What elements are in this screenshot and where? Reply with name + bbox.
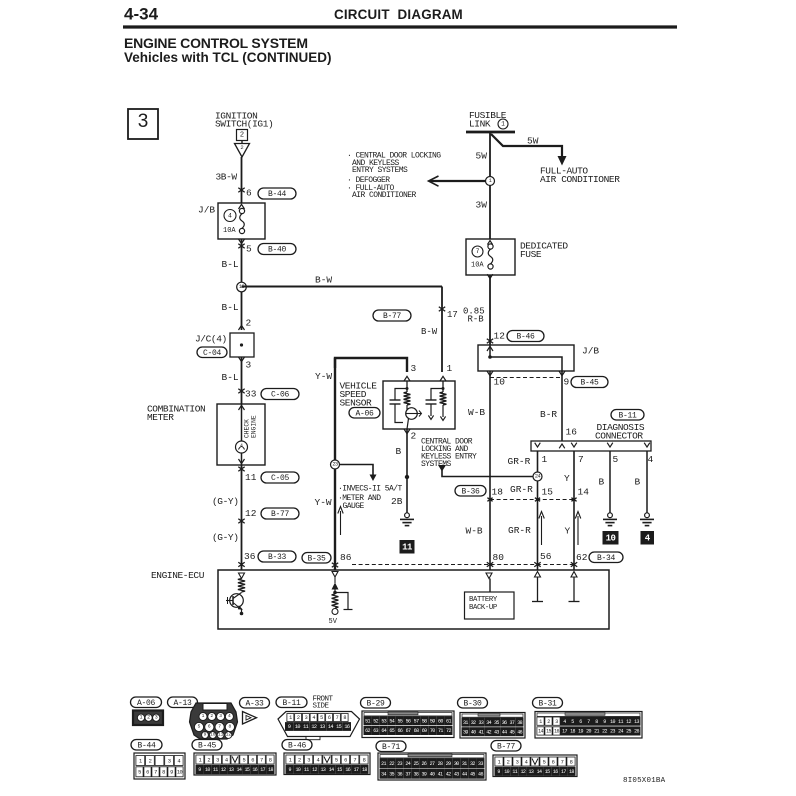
svg-text:5: 5	[246, 243, 252, 254]
svg-text:2: 2	[149, 758, 152, 764]
svg-text:68: 68	[414, 728, 419, 734]
svg-text:71: 71	[438, 728, 443, 734]
svg-text:·INVECS-II 5A/T: ·INVECS-II 5A/T	[338, 485, 403, 494]
svg-text:8: 8	[162, 770, 165, 776]
svg-text:24: 24	[535, 474, 541, 480]
svg-text:25: 25	[626, 729, 631, 735]
svg-text:B-77: B-77	[383, 312, 402, 321]
svg-text:6: 6	[344, 757, 347, 763]
svg-text:4: 4	[240, 443, 243, 449]
svg-text:LINK: LINK	[469, 118, 491, 129]
svg-text:45: 45	[470, 771, 475, 777]
svg-text:31: 31	[463, 720, 468, 726]
svg-text:5: 5	[242, 757, 245, 763]
svg-text:B-45: B-45	[580, 379, 599, 388]
svg-text:5W: 5W	[527, 135, 539, 146]
svg-text:2: 2	[298, 757, 301, 763]
svg-text:55: 55	[398, 718, 403, 724]
svg-text:12: 12	[494, 330, 506, 341]
svg-text:B: B	[396, 446, 402, 457]
svg-text:B-45: B-45	[198, 741, 217, 750]
svg-text:2: 2	[147, 715, 150, 721]
svg-text:3: 3	[216, 757, 219, 763]
svg-text:16: 16	[566, 426, 578, 437]
svg-text:23: 23	[397, 761, 402, 767]
svg-text:35: 35	[494, 720, 499, 726]
svg-text:1: 1	[542, 454, 548, 465]
svg-text:ENTRY SYSTEMS: ENTRY SYSTEMS	[352, 166, 408, 175]
svg-text:15: 15	[337, 767, 342, 773]
svg-text:80: 80	[493, 552, 505, 563]
svg-text:B-36: B-36	[461, 487, 480, 496]
svg-text:B-11: B-11	[282, 699, 301, 708]
svg-text:36: 36	[397, 771, 402, 777]
svg-text:16: 16	[345, 767, 350, 773]
svg-text:42: 42	[446, 771, 451, 777]
svg-text:2: 2	[207, 757, 210, 763]
svg-text:37: 37	[405, 771, 410, 777]
svg-text:12: 12	[226, 731, 232, 737]
svg-text:12: 12	[520, 769, 525, 775]
svg-text:R-B: R-B	[468, 315, 485, 325]
svg-text:11: 11	[218, 731, 224, 737]
svg-text:C-06: C-06	[271, 391, 290, 400]
svg-text:1: 1	[139, 715, 142, 721]
svg-text:3W: 3W	[476, 199, 488, 210]
svg-text:Vehicles with TCL (CONTINUED): Vehicles with TCL (CONTINUED)	[124, 50, 332, 65]
svg-text:CIRCUIT DIAGRAM: CIRCUIT DIAGRAM	[334, 7, 463, 22]
svg-text:30: 30	[454, 761, 459, 767]
svg-text:CHECK: CHECK	[244, 419, 251, 438]
svg-text:61: 61	[446, 718, 451, 724]
svg-text:23: 23	[332, 462, 338, 468]
svg-text:15: 15	[545, 769, 550, 775]
svg-text:33: 33	[478, 761, 483, 767]
svg-text:36: 36	[244, 551, 256, 562]
svg-text:14: 14	[237, 767, 242, 773]
svg-text:42: 42	[486, 729, 491, 735]
svg-text:SYSTEMS: SYSTEMS	[421, 460, 452, 469]
svg-text:B-34: B-34	[597, 554, 616, 563]
svg-text:34: 34	[486, 720, 491, 726]
svg-text:B: B	[599, 476, 605, 487]
svg-text:A-33: A-33	[245, 699, 264, 708]
svg-text:C-04: C-04	[203, 349, 222, 358]
svg-text:17: 17	[354, 767, 359, 773]
svg-text:Y: Y	[564, 473, 570, 484]
svg-text:67: 67	[406, 728, 411, 734]
svg-text:22: 22	[602, 729, 607, 735]
svg-text:13: 13	[634, 719, 639, 725]
svg-text:1: 1	[289, 757, 292, 763]
svg-text:GR-R: GR-R	[510, 484, 533, 495]
svg-text:35: 35	[389, 771, 394, 777]
svg-text:9: 9	[564, 376, 570, 387]
svg-text:A-13: A-13	[173, 699, 192, 708]
svg-text:B-L: B-L	[222, 302, 239, 313]
svg-text:40: 40	[471, 729, 476, 735]
svg-text:3: 3	[155, 715, 158, 721]
svg-text:8: 8	[363, 757, 366, 763]
svg-text:62: 62	[576, 552, 588, 563]
svg-text:B-L: B-L	[222, 372, 239, 383]
svg-text:SWITCH(IG1): SWITCH(IG1)	[215, 118, 273, 129]
svg-text:5: 5	[198, 723, 201, 729]
svg-text:12: 12	[626, 719, 631, 725]
svg-text:15: 15	[336, 724, 342, 730]
svg-text:13: 13	[529, 769, 534, 775]
svg-text:53: 53	[381, 718, 386, 724]
svg-text:10: 10	[494, 376, 506, 387]
svg-text:GR-R: GR-R	[508, 525, 531, 536]
svg-text:CONNECTOR: CONNECTOR	[595, 430, 643, 441]
svg-text:17: 17	[561, 769, 566, 775]
svg-text:3: 3	[516, 759, 519, 765]
svg-text:2: 2	[240, 132, 244, 140]
svg-text:METER: METER	[147, 412, 174, 423]
svg-text:11: 11	[303, 724, 309, 730]
svg-text:18: 18	[362, 767, 367, 773]
svg-text:24: 24	[618, 729, 623, 735]
svg-text:10A: 10A	[223, 227, 236, 235]
svg-text:10: 10	[295, 724, 301, 730]
svg-text:36: 36	[502, 720, 507, 726]
svg-text:3: 3	[411, 363, 417, 374]
svg-text:46: 46	[517, 729, 522, 735]
svg-text:43: 43	[454, 771, 459, 777]
svg-text:44: 44	[502, 729, 507, 735]
svg-text:56: 56	[406, 718, 411, 724]
svg-text:J/B: J/B	[198, 204, 215, 215]
svg-text:70: 70	[430, 728, 435, 734]
svg-text:17: 17	[562, 729, 567, 735]
svg-text:4-34: 4-34	[124, 4, 159, 23]
svg-text:69: 69	[422, 728, 427, 734]
svg-text:2: 2	[246, 317, 252, 328]
svg-text:12: 12	[221, 767, 226, 773]
svg-text:2: 2	[240, 144, 243, 151]
svg-text:J/B: J/B	[582, 345, 599, 356]
svg-text:46: 46	[478, 771, 483, 777]
svg-text:4: 4	[316, 757, 319, 763]
svg-text:64: 64	[381, 728, 386, 734]
svg-text:38: 38	[517, 720, 522, 726]
svg-text:1: 1	[501, 121, 505, 128]
svg-text:60: 60	[438, 718, 443, 724]
svg-text:ENGINE: ENGINE	[251, 415, 258, 438]
svg-text:B-44: B-44	[137, 741, 156, 750]
svg-text:5: 5	[138, 770, 141, 776]
svg-text:7: 7	[260, 757, 263, 763]
svg-text:4: 4	[648, 454, 654, 465]
svg-text:15: 15	[546, 729, 551, 735]
svg-text:5: 5	[335, 757, 338, 763]
svg-text:B-11: B-11	[618, 411, 637, 420]
svg-text:58: 58	[422, 718, 427, 724]
svg-text:3: 3	[307, 757, 310, 763]
svg-text:B: B	[635, 476, 641, 487]
svg-text:SENSOR: SENSOR	[340, 397, 373, 408]
svg-text:20: 20	[586, 729, 591, 735]
svg-text:13: 13	[229, 767, 234, 773]
svg-text:A-06: A-06	[355, 409, 374, 418]
svg-text:Y-W: Y-W	[315, 371, 332, 382]
svg-text:B-30: B-30	[463, 699, 482, 708]
svg-text:33: 33	[245, 388, 257, 399]
svg-text:18: 18	[570, 729, 575, 735]
svg-text:10: 10	[177, 770, 183, 776]
svg-text:22: 22	[389, 761, 394, 767]
svg-text:8: 8	[229, 723, 232, 729]
svg-text:6: 6	[552, 759, 555, 765]
svg-text:18: 18	[268, 767, 273, 773]
svg-text:13: 13	[320, 724, 326, 730]
svg-text:12: 12	[245, 508, 257, 519]
svg-text:32: 32	[471, 720, 476, 726]
svg-text:1: 1	[139, 758, 142, 764]
svg-text:41: 41	[478, 729, 483, 735]
svg-text:44: 44	[462, 771, 467, 777]
svg-text:38: 38	[413, 771, 418, 777]
svg-text:4: 4	[525, 759, 528, 765]
svg-text:B-77: B-77	[497, 742, 516, 751]
svg-text:9: 9	[170, 770, 173, 776]
svg-text:26: 26	[422, 761, 427, 767]
svg-text:14: 14	[578, 486, 590, 497]
svg-text:4: 4	[228, 212, 232, 219]
svg-text:BACK-UP: BACK-UP	[469, 604, 497, 612]
svg-text:B-31: B-31	[538, 699, 557, 708]
svg-text:GR-R: GR-R	[508, 456, 531, 467]
svg-text:6: 6	[246, 187, 252, 198]
svg-text:11: 11	[618, 719, 623, 725]
svg-text:39: 39	[422, 771, 427, 777]
svg-text:24: 24	[405, 761, 410, 767]
svg-text:B-40: B-40	[268, 246, 287, 255]
svg-text:51: 51	[365, 718, 370, 724]
svg-text:7: 7	[561, 759, 564, 765]
svg-text:B-77: B-77	[271, 510, 290, 519]
svg-text:26: 26	[634, 729, 639, 735]
svg-text:8I05X01BA: 8I05X01BA	[623, 777, 666, 785]
svg-text:Y: Y	[565, 525, 571, 536]
svg-text:B-29: B-29	[366, 699, 385, 708]
svg-text:2: 2	[507, 759, 510, 765]
svg-text:9: 9	[204, 731, 207, 737]
svg-text:10: 10	[504, 769, 509, 775]
svg-text:11: 11	[245, 472, 257, 483]
svg-text:(G-Y): (G-Y)	[212, 532, 239, 543]
svg-text:54: 54	[389, 718, 394, 724]
svg-text:1: 1	[199, 757, 202, 763]
svg-text:5: 5	[543, 759, 546, 765]
svg-text:3: 3	[168, 758, 171, 764]
svg-text:10A: 10A	[471, 262, 484, 270]
svg-text:7: 7	[154, 770, 157, 776]
svg-text:72: 72	[446, 728, 451, 734]
svg-text:10: 10	[210, 731, 216, 737]
svg-text:59: 59	[430, 718, 435, 724]
svg-text:13: 13	[320, 767, 325, 773]
svg-text:AIR CONDITIONER: AIR CONDITIONER	[540, 174, 620, 185]
svg-text:31: 31	[462, 761, 467, 767]
svg-text:21: 21	[594, 729, 599, 735]
svg-text:7: 7	[578, 454, 584, 465]
svg-text:B-W: B-W	[421, 327, 438, 337]
svg-text:66: 66	[398, 728, 403, 734]
svg-text:16: 16	[344, 724, 350, 730]
svg-text:2B: 2B	[391, 496, 403, 507]
svg-text:11: 11	[512, 769, 517, 775]
svg-text:39: 39	[463, 729, 468, 735]
svg-text:12: 12	[312, 767, 317, 773]
svg-text:4: 4	[225, 757, 228, 763]
svg-text:6: 6	[208, 723, 211, 729]
svg-text:15: 15	[244, 767, 249, 773]
svg-text:B-R: B-R	[540, 409, 557, 420]
svg-text:16: 16	[554, 729, 559, 735]
svg-text:A-06: A-06	[137, 699, 156, 708]
svg-text:SIDE: SIDE	[313, 702, 330, 710]
svg-text:33: 33	[478, 720, 483, 726]
svg-text:63: 63	[373, 728, 378, 734]
svg-text:AIR CONDITIONER: AIR CONDITIONER	[352, 191, 417, 200]
svg-text:10: 10	[296, 767, 301, 773]
svg-text:GAUGE: GAUGE	[343, 502, 365, 511]
svg-text:16: 16	[553, 769, 558, 775]
svg-text:B-71: B-71	[382, 743, 401, 752]
svg-text:B-44: B-44	[268, 190, 287, 199]
svg-text:3: 3	[138, 111, 149, 132]
svg-text:7: 7	[218, 723, 221, 729]
svg-text:11: 11	[304, 767, 309, 773]
svg-text:12: 12	[311, 724, 317, 730]
svg-text:FUSE: FUSE	[520, 249, 542, 260]
svg-text:(G-Y): (G-Y)	[212, 496, 239, 507]
svg-text:10: 10	[610, 719, 615, 725]
svg-text:B-L: B-L	[222, 259, 239, 270]
svg-text:8: 8	[570, 759, 573, 765]
svg-text:7: 7	[353, 757, 356, 763]
svg-text:3B-W: 3B-W	[216, 171, 238, 182]
svg-text:1: 1	[202, 713, 205, 719]
svg-text:B-W: B-W	[315, 274, 332, 285]
svg-text:Y-W: Y-W	[315, 497, 332, 508]
svg-text:C-05: C-05	[271, 474, 290, 483]
svg-text:27: 27	[430, 761, 435, 767]
svg-text:14: 14	[538, 729, 543, 735]
svg-text:ENGINE-ECU: ENGINE-ECU	[151, 570, 205, 581]
svg-text:18: 18	[569, 769, 574, 775]
svg-text:1: 1	[498, 759, 501, 765]
svg-text:11: 11	[402, 543, 413, 553]
svg-text:6: 6	[251, 757, 254, 763]
svg-text:J/C(4): J/C(4)	[195, 333, 227, 344]
svg-text:62: 62	[365, 728, 370, 734]
svg-text:21: 21	[381, 761, 386, 767]
svg-text:34: 34	[381, 771, 386, 777]
svg-text:14: 14	[329, 767, 334, 773]
svg-text:23: 23	[610, 729, 615, 735]
svg-text:3: 3	[246, 359, 252, 370]
svg-text:18: 18	[492, 486, 504, 497]
svg-text:8: 8	[269, 757, 272, 763]
svg-text:5: 5	[613, 454, 619, 465]
svg-text:5W: 5W	[476, 150, 488, 161]
svg-text:BATTERY: BATTERY	[469, 596, 498, 604]
svg-text:10: 10	[205, 767, 210, 773]
svg-text:4: 4	[177, 758, 180, 764]
svg-text:86: 86	[340, 552, 352, 563]
svg-text:17: 17	[447, 310, 458, 320]
svg-text:52: 52	[373, 718, 378, 724]
svg-text:16: 16	[252, 767, 257, 773]
svg-text:W-B: W-B	[466, 525, 483, 536]
svg-text:41: 41	[438, 771, 443, 777]
svg-text:10: 10	[606, 534, 616, 544]
svg-text:56: 56	[540, 551, 552, 562]
svg-text:40: 40	[430, 771, 435, 777]
svg-text:65: 65	[389, 728, 394, 734]
svg-text:B-46: B-46	[516, 333, 535, 342]
svg-text:1: 1	[489, 178, 492, 184]
svg-text:14: 14	[328, 724, 334, 730]
svg-text:15: 15	[542, 486, 554, 497]
svg-text:29: 29	[446, 761, 451, 767]
svg-text:11: 11	[213, 767, 218, 773]
svg-text:45: 45	[509, 729, 514, 735]
svg-text:57: 57	[414, 718, 419, 724]
svg-text:28: 28	[438, 761, 443, 767]
svg-text:4: 4	[228, 713, 231, 719]
svg-text:43: 43	[494, 729, 499, 735]
svg-text:B-33: B-33	[268, 553, 287, 562]
svg-text:14: 14	[537, 769, 542, 775]
svg-text:5V: 5V	[329, 618, 338, 626]
svg-text:B-35: B-35	[307, 554, 326, 563]
svg-text:7: 7	[476, 248, 480, 255]
svg-text:2: 2	[411, 430, 417, 441]
svg-text:25: 25	[413, 761, 418, 767]
svg-text:ENGINE CONTROL SYSTEM: ENGINE CONTROL SYSTEM	[124, 35, 308, 51]
svg-text:6: 6	[146, 770, 149, 776]
svg-text:19: 19	[578, 729, 583, 735]
svg-text:37: 37	[509, 720, 514, 726]
svg-text:17: 17	[260, 767, 265, 773]
svg-text:32: 32	[470, 761, 475, 767]
svg-text:1: 1	[447, 363, 453, 374]
svg-text:2: 2	[210, 713, 213, 719]
svg-text:W-B: W-B	[468, 407, 485, 418]
svg-text:3: 3	[219, 713, 222, 719]
svg-text:B-46: B-46	[288, 741, 307, 750]
